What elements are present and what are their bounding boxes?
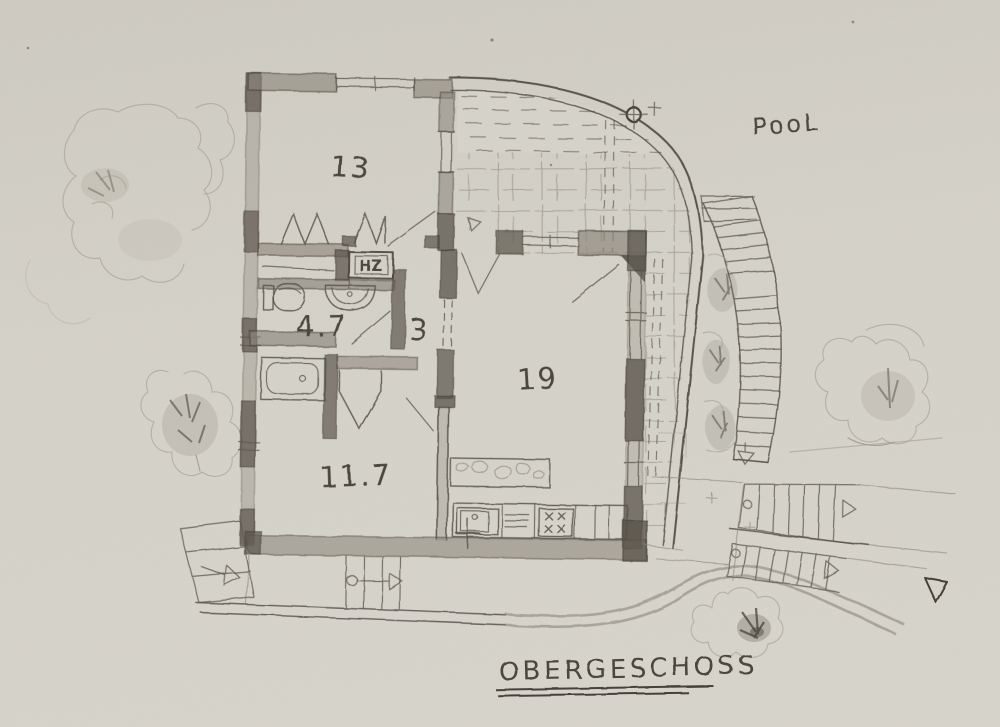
wall-top [248,73,336,91]
floor-plan-canvas: HZ [0,0,1000,727]
floor-plan-sketch: HZ [0,0,1000,727]
room-label-4-7: 4.7 [295,308,348,343]
room-label-19: 19 [516,361,559,397]
heating-unit-label: HZ [359,257,383,275]
room-label-3: 3 [408,312,429,346]
room-label-11-7: 11.7 [319,458,393,495]
pool-label: PooL [751,108,821,141]
room-label-13: 13 [329,149,372,186]
